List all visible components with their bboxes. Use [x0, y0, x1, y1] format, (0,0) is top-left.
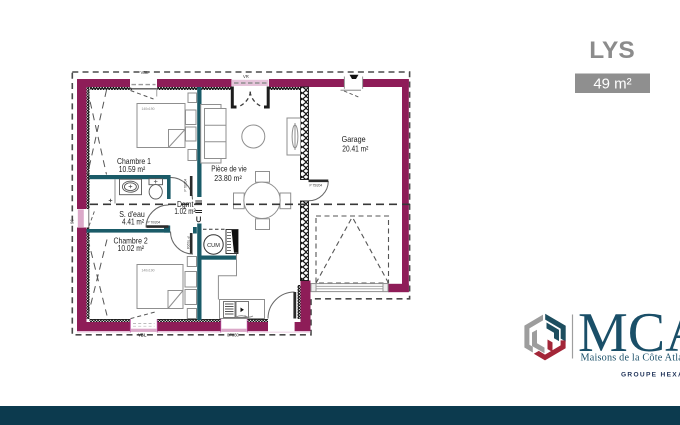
svg-text:P 70/204: P 70/204 — [148, 221, 161, 225]
svg-text:140x190: 140x190 — [142, 269, 155, 273]
svg-text:Pièce de vie: Pièce de vie — [211, 165, 247, 174]
svg-text:LYS: LYS — [589, 37, 634, 64]
svg-text:Garage: Garage — [342, 135, 366, 144]
svg-text:P 70/204: P 70/204 — [186, 237, 190, 250]
svg-text:GROUPE HEXAOM: GROUPE HEXAOM — [621, 372, 680, 379]
svg-text:VBL: VBL — [141, 70, 150, 75]
svg-text:0F030: 0F030 — [227, 332, 240, 337]
svg-text:P 70/204: P 70/204 — [184, 179, 188, 192]
svg-text:49 m²: 49 m² — [593, 76, 631, 93]
svg-text:20.41 m²: 20.41 m² — [342, 144, 368, 153]
svg-text:96: 96 — [70, 219, 75, 224]
svg-text:10.02 m²: 10.02 m² — [118, 244, 145, 253]
svg-text:CUM: CUM — [207, 243, 220, 249]
svg-text:P 75/204: P 75/204 — [310, 184, 323, 188]
svg-text:VBL: VBL — [138, 333, 147, 338]
svg-text:Maisons de la Côte Atlantique: Maisons de la Côte Atlantique — [581, 353, 680, 364]
svg-text:140x190: 140x190 — [142, 107, 155, 111]
svg-text:VR: VR — [243, 74, 249, 79]
svg-text:10.59 m²: 10.59 m² — [119, 165, 146, 174]
svg-text:1.02 m²: 1.02 m² — [174, 207, 195, 216]
svg-text:23.80 m²: 23.80 m² — [214, 174, 242, 183]
svg-text:4.41 m²: 4.41 m² — [122, 218, 144, 227]
